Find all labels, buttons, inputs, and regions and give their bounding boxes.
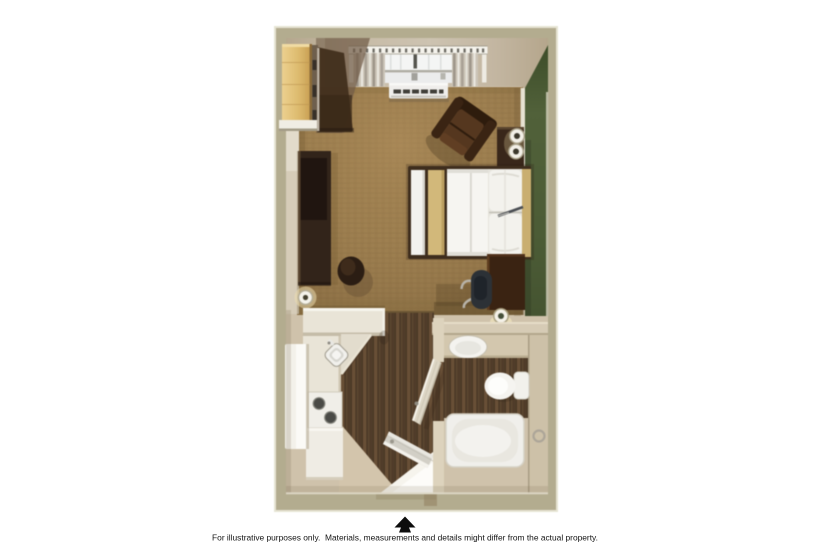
svg-text:For illustrative purposes only: For illustrative purposes only. Material… — [212, 533, 598, 543]
